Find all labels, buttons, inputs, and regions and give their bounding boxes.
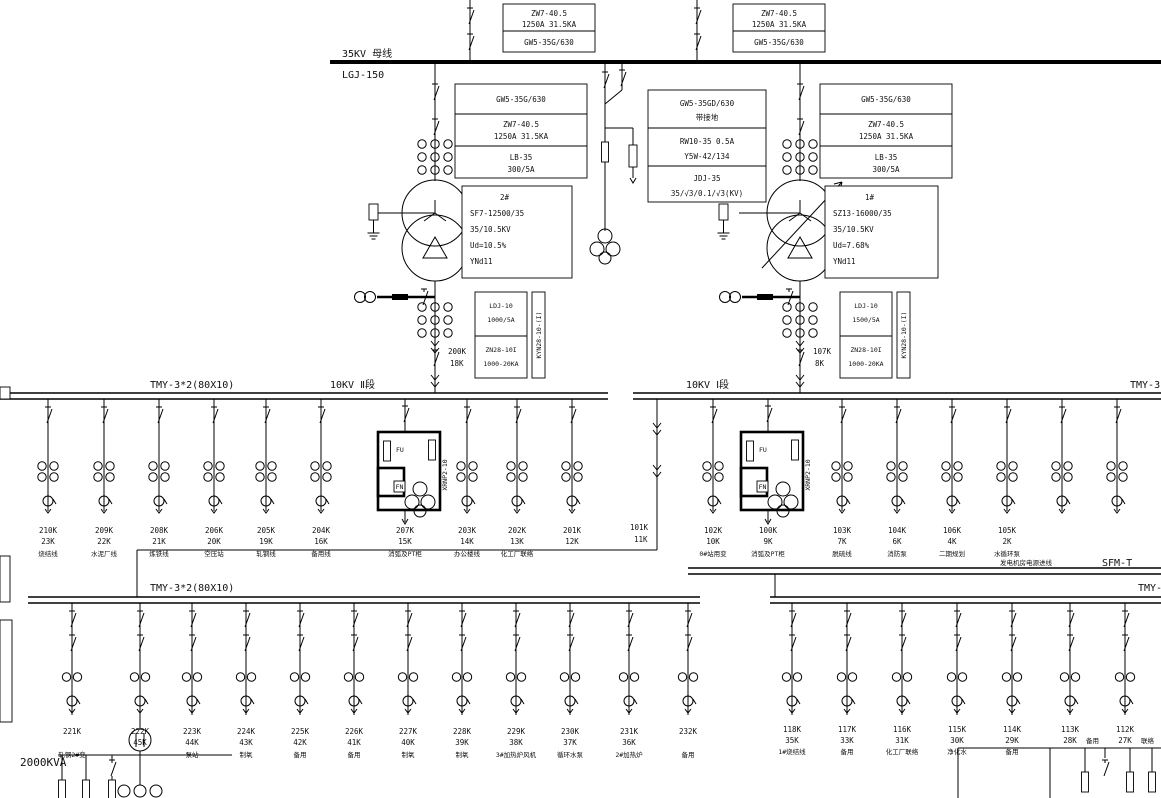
feeder-id: 112K (1116, 725, 1135, 734)
pt-bay-right: FU XRNP2-10 FN 100K 9K 消弧及PT柜 (741, 399, 812, 558)
feeder-bay: 232K备用 (678, 603, 697, 759)
incomer-cabinet: KYN28-10-(I) (900, 312, 908, 359)
feeder-amp: 38K (509, 738, 523, 747)
busbar-spec: TMY-3 (1130, 380, 1160, 391)
feeder-bay: 116K31K化工厂联络 (886, 603, 919, 756)
feeder-id: 228K (453, 727, 472, 736)
feeder-id: 223K (183, 727, 202, 736)
feeder-bay: 117K33K备用 (837, 603, 856, 756)
feeder-amp: 28K (1063, 736, 1077, 745)
incomer-code: 200K (448, 347, 467, 356)
incomer-breaker: ZN28-10I (485, 346, 516, 354)
incomer-ct-ratio: 1000/5A (487, 316, 514, 324)
feeder-name: 循环水泵 (557, 750, 584, 759)
feeder-name: 水泥厂线 (91, 549, 118, 558)
incomer-ct: LDJ-10 (489, 302, 513, 310)
feeder-bay: 113K28K备用 (1060, 603, 1099, 745)
tx-id: 1# (865, 193, 875, 202)
feeder-name: 脱硫线 (832, 549, 852, 558)
rolling-mill-transformer-assembly: 2000KVA (0, 620, 232, 798)
feeder-id: 208K (150, 526, 169, 535)
feeder-name: 0#站用变 (699, 549, 727, 558)
fuse-model: XRNP2-10 (804, 459, 812, 490)
bus-35kv-label: 35KV 母线 (342, 47, 392, 60)
feeder-id: 229K (507, 727, 526, 736)
feeder-name: 3#加热炉风机 (496, 750, 537, 759)
bus-section-label: 10KV Ⅱ段 (330, 378, 375, 391)
incoming-line-2: ZW7-40.5 1250A 31.5KA GW5-35G/630 (694, 0, 825, 62)
feeder-name: 水循环泵 (994, 549, 1021, 558)
feeder-amp: 2K (1002, 537, 1012, 546)
incoming-box-line2: 1250A 31.5KA (522, 20, 577, 29)
bus-10kv-section2: TMY-3*2(80X10) 10KV Ⅱ段 (0, 378, 608, 399)
drawing-code: SFM-T (1102, 558, 1132, 569)
feeder-bay (1052, 399, 1072, 513)
feeder-bay: 206K20K空压站 (204, 399, 224, 558)
feeder-amp: 45K (133, 738, 147, 747)
bay-box-text: 300/5A (872, 165, 900, 174)
tx-ratio: 35/10.5KV (833, 225, 874, 234)
feeder-name: 空压站 (204, 549, 224, 558)
feeder-amp: 27K (1118, 736, 1132, 745)
feeder-amp: 14K (460, 537, 474, 546)
feeder-bay: 105K2K水循环泵 (994, 399, 1021, 558)
single-line-diagram: ZW7-40.5 1250A 31.5KA GW5-35G/630 ZW7-40… (0, 0, 1161, 798)
feeder-amp: 13K (510, 537, 524, 546)
feeder-id: 226K (345, 727, 364, 736)
feeder-name: 备用 (1086, 736, 1099, 745)
bus-section-label: 10KV Ⅰ段 (686, 378, 729, 391)
incomer-breaker: ZN28-10I (850, 346, 881, 354)
incomer-10kv-left: 200K 18K LDJ-10 1000/5A ZN28-10I 1000-20… (355, 281, 546, 393)
feeder-amp: 39K (455, 738, 469, 747)
feeder-name: 消防泵 (887, 549, 907, 558)
feeder-id: 210K (39, 526, 58, 535)
feeder-bay: 231K36K2#加热炉 (615, 603, 643, 759)
feeder-bay: 112K27K联络 (1115, 603, 1154, 745)
feeders-bottom-left: 221K轧钢2#变222K45K223K44K泵站224K43K制氧225K42… (58, 603, 697, 759)
feeder-id: 103K (833, 526, 852, 535)
feeder-amp: 23K (41, 537, 55, 546)
feeder-name: 制氧 (456, 750, 470, 759)
feeder-id: 231K (620, 727, 639, 736)
fuse-model: XRNP2-10 (441, 459, 449, 490)
feeder-name: 2#加热炉 (615, 750, 643, 759)
feeder-id: 209K (95, 526, 114, 535)
feeder-bay: 227K40K制氧 (398, 603, 417, 759)
tx-id: 2# (500, 193, 510, 202)
incomer-ct: LDJ-10 (854, 302, 878, 310)
busbar-spec: TMY-3*2(80X10) (150, 380, 234, 391)
feeder-amp: 33K (840, 736, 854, 745)
incoming-box-line1: ZW7-40.5 (761, 9, 797, 18)
feeder-amp: 35K (785, 736, 799, 745)
feeder-id: 113K (1061, 725, 1080, 734)
bottom-right-bay (958, 748, 1161, 798)
feeder-amp: 29K (1005, 736, 1019, 745)
feeder-name: 消弧及PT柜 (751, 549, 785, 558)
generator-note: 发电机房电源进线 (1000, 558, 1053, 567)
fn-label: FN (396, 483, 404, 491)
bay-35kv-left: GW5-35G/630 ZW7-40.5 1250A 31.5KA LB-35 … (418, 62, 587, 181)
feeder-amp: 9K (763, 537, 773, 546)
feeder-amp: 43K (239, 738, 253, 747)
feeder-bay: 205K19K轧钢线 (256, 399, 276, 558)
incoming-line-1: ZW7-40.5 1250A 31.5KA GW5-35G/630 (467, 0, 595, 62)
pt-box-text: JDJ-35 (693, 174, 720, 183)
feeder-name: 办公楼线 (454, 549, 481, 558)
busbar-spec: TMY- (1138, 583, 1161, 594)
feeder-bay: 230K37K循环水泵 (557, 603, 584, 759)
pt-bay-left: FU XRNP2-10 FN 207K 15K 消弧及PT柜 (378, 399, 449, 558)
bay-35kv-pt: GW5-35GD/630 带接地 RW10-35 0.5A Y5W-42/134… (590, 62, 766, 264)
bay-box-text: 300/5A (507, 165, 535, 174)
tx-ratio: 35/10.5KV (470, 225, 511, 234)
feeder-amp: 31K (895, 736, 909, 745)
feeder-amp: 36K (622, 738, 636, 747)
incomer-ct-ratio: 1500/5A (852, 316, 879, 324)
feeder-amp: 10K (706, 537, 720, 546)
tie-num: 11K (634, 535, 648, 544)
feeder-name: 制氧 (240, 750, 254, 759)
feeder-amp: 12K (565, 537, 579, 546)
bus-35kv-conductor: LGJ-150 (342, 70, 384, 81)
bay-box-text: 1250A 31.5KA (494, 132, 549, 141)
tx-vector: YNd11 (470, 257, 493, 266)
bus-10kv-lower-left: TMY-3*2(80X10) (0, 556, 700, 603)
feeder-bay: 102K10K0#站用变 (699, 399, 727, 558)
bay-box-text: GW5-35G/630 (861, 95, 911, 104)
tie-code: 101K (630, 523, 649, 532)
tx-model: SF7-12500/35 (470, 209, 524, 218)
feeder-name: 二期规划 (939, 549, 965, 558)
feeder-name: 备用 (841, 747, 854, 756)
incomer-10kv-right: 107K 8K LDJ-10 1500/5A ZN28-10I 1000-20K… (720, 281, 911, 393)
feeder-id: 204K (312, 526, 331, 535)
feeder-name: 备用 (294, 750, 307, 759)
generator-incoming-line: 发电机房电源进线 SFM-T (688, 558, 1161, 597)
tx-vector: YNd11 (833, 257, 856, 266)
bus-10kv-lower-right: TMY- (770, 583, 1161, 603)
feeder-amp: 22K (97, 537, 111, 546)
single-line-diagram-page: ZW7-40.5 1250A 31.5KA GW5-35G/630 ZW7-40… (0, 0, 1161, 798)
tie-feeder: 101K 11K (137, 399, 661, 597)
feeder-bay: 229K38K3#加热炉风机 (496, 603, 537, 759)
incomer-num: 8K (815, 359, 825, 368)
feeder-amp: 15K (398, 537, 412, 546)
incomer-capacity: 1000-20KA (848, 360, 883, 368)
fu-label: FU (396, 446, 404, 454)
feeder-name: 备用 (348, 750, 361, 759)
feeder-name: 1#烧结线 (778, 747, 806, 756)
feeder-bay: 204K16K备用线 (311, 399, 331, 558)
incoming-box-line3: GW5-35G/630 (524, 38, 574, 47)
bay-box-text: LB-35 (510, 153, 533, 162)
pt-box-text: RW10-35 0.5A (680, 137, 735, 146)
feeder-id: 207K (396, 526, 415, 535)
feeders-bottom-right: 118K35K1#烧结线117K33K备用116K31K化工厂联络115K30K… (778, 603, 1154, 756)
feeder-bay: 103K7K脱硫线 (832, 399, 852, 558)
feeder-id: 224K (237, 727, 256, 736)
feeder-amp: 6K (892, 537, 902, 546)
feeder-amp: 19K (259, 537, 273, 546)
tx-uk: Ud=7.68% (833, 241, 870, 250)
feeder-id: 116K (893, 725, 912, 734)
feeder-id: 230K (561, 727, 580, 736)
tx-model: SZ13-16000/35 (833, 209, 892, 218)
feeder-amp: 42K (293, 738, 307, 747)
feeder-id: 114K (1003, 725, 1022, 734)
feeder-id: 100K (759, 526, 778, 535)
incoming-box-line3: GW5-35G/630 (754, 38, 804, 47)
feeder-id: 105K (998, 526, 1017, 535)
feeder-bay: 223K44K泵站 (182, 603, 201, 759)
feeder-name: 备用 (682, 750, 695, 759)
pt-box-text: 带接地 (696, 112, 719, 122)
feeder-bay: 203K14K办公楼线 (454, 399, 481, 558)
feeder-id: 232K (679, 727, 698, 736)
feeder-bay: 210K23K烧结线 (38, 399, 58, 558)
feeder-name: 备用线 (311, 549, 331, 558)
kva-label: 2000KVA (20, 756, 67, 769)
feeder-name: 制氧 (402, 750, 416, 759)
feeder-id: 102K (704, 526, 723, 535)
feeder-id: 221K (63, 727, 82, 736)
incoming-box-line1: ZW7-40.5 (531, 9, 567, 18)
feeder-id: 115K (948, 725, 967, 734)
feeder-name: 烧结线 (38, 549, 58, 558)
tx-uk: Ud=10.5% (470, 241, 507, 250)
feeder-id: 225K (291, 727, 310, 736)
pt-box-text: Y5W-42/134 (684, 152, 730, 161)
feeder-name: 联络 (1141, 736, 1155, 745)
feeder-bay (1107, 399, 1127, 513)
feeder-id: 202K (508, 526, 527, 535)
feeders-mid-left: 210K23K烧结线209K22K水泥厂线208K21K炼铁线206K20K空压… (38, 399, 582, 558)
feeder-amp: 20K (207, 537, 221, 546)
feeder-bay: 201K12K (562, 399, 582, 546)
feeder-id: 106K (943, 526, 962, 535)
feeder-amp: 21K (152, 537, 166, 546)
bay-box-text: GW5-35G/630 (496, 95, 546, 104)
feeder-name: 化工厂联络 (501, 549, 534, 558)
feeder-amp: 4K (947, 537, 957, 546)
feeder-bay: 221K轧钢2#变 (58, 603, 86, 759)
transformer-2: 2# SF7-12500/35 35/10.5KV Ud=10.5% YNd11 (368, 180, 573, 281)
feeder-amp: 16K (314, 537, 328, 546)
feeder-bay: 208K21K炼铁线 (149, 399, 169, 558)
feeder-id: 203K (458, 526, 477, 535)
incoming-box-line2: 1250A 31.5KA (752, 20, 807, 29)
incomer-num: 18K (450, 359, 464, 368)
feeder-bay: 228K39K制氧 (452, 603, 471, 759)
bus-10kv-section1: 10KV Ⅰ段 TMY-3 (633, 378, 1161, 399)
feeder-id: 206K (205, 526, 224, 535)
pt-box-text: 35/√3/0.1/√3(KV) (671, 189, 743, 198)
feeder-bay: 104K6K消防泵 (887, 399, 907, 558)
feeder-amp: 44K (185, 738, 199, 747)
bay-box-text: 1250A 31.5KA (859, 132, 914, 141)
bay-box-text: ZW7-40.5 (503, 120, 539, 129)
feeder-id: 205K (257, 526, 276, 535)
feeder-bay: 115K30K净化水 (947, 603, 967, 756)
bay-box-text: LB-35 (875, 153, 898, 162)
feeder-id: 227K (399, 727, 418, 736)
feeder-id: 118K (783, 725, 802, 734)
feeder-amp: 37K (563, 738, 577, 747)
feeder-id: 201K (563, 526, 582, 535)
incomer-capacity: 1000-20KA (483, 360, 518, 368)
busbar-spec: TMY-3*2(80X10) (150, 583, 234, 594)
pt-box-text: GW5-35GD/630 (680, 99, 735, 108)
feeder-name: 炼铁线 (149, 549, 169, 558)
feeder-id: 117K (838, 725, 857, 734)
feeder-bay: 209K22K水泥厂线 (91, 399, 118, 558)
feeder-amp: 7K (837, 537, 847, 546)
feeder-bay: 226K41K备用 (344, 603, 363, 759)
feeder-bay: 114K29K备用 (1002, 603, 1021, 756)
feeder-amp: 41K (347, 738, 361, 747)
feeder-id: 104K (888, 526, 907, 535)
feeder-bay: 225K42K备用 (290, 603, 309, 759)
feeder-bay: 202K13K化工厂联络 (501, 399, 534, 558)
feeder-bay: 118K35K1#烧结线 (778, 603, 806, 756)
feeder-bay: 224K43K制氧 (236, 603, 255, 759)
fn-label: FN (759, 483, 767, 491)
feeder-name: 轧钢线 (256, 549, 276, 558)
feeder-name: 化工厂联络 (886, 747, 919, 756)
bay-box-text: ZW7-40.5 (868, 120, 904, 129)
bay-35kv-right: GW5-35G/630 ZW7-40.5 1250A 31.5KA LB-35 … (783, 62, 952, 181)
fu-label: FU (759, 446, 767, 454)
incomer-cabinet: KYN28-10-(I) (535, 312, 543, 359)
feeder-amp: 30K (950, 736, 964, 745)
incomer-code: 107K (813, 347, 832, 356)
feeder-bay: 106K4K二期规划 (939, 399, 965, 558)
feeder-amp: 40K (401, 738, 415, 747)
